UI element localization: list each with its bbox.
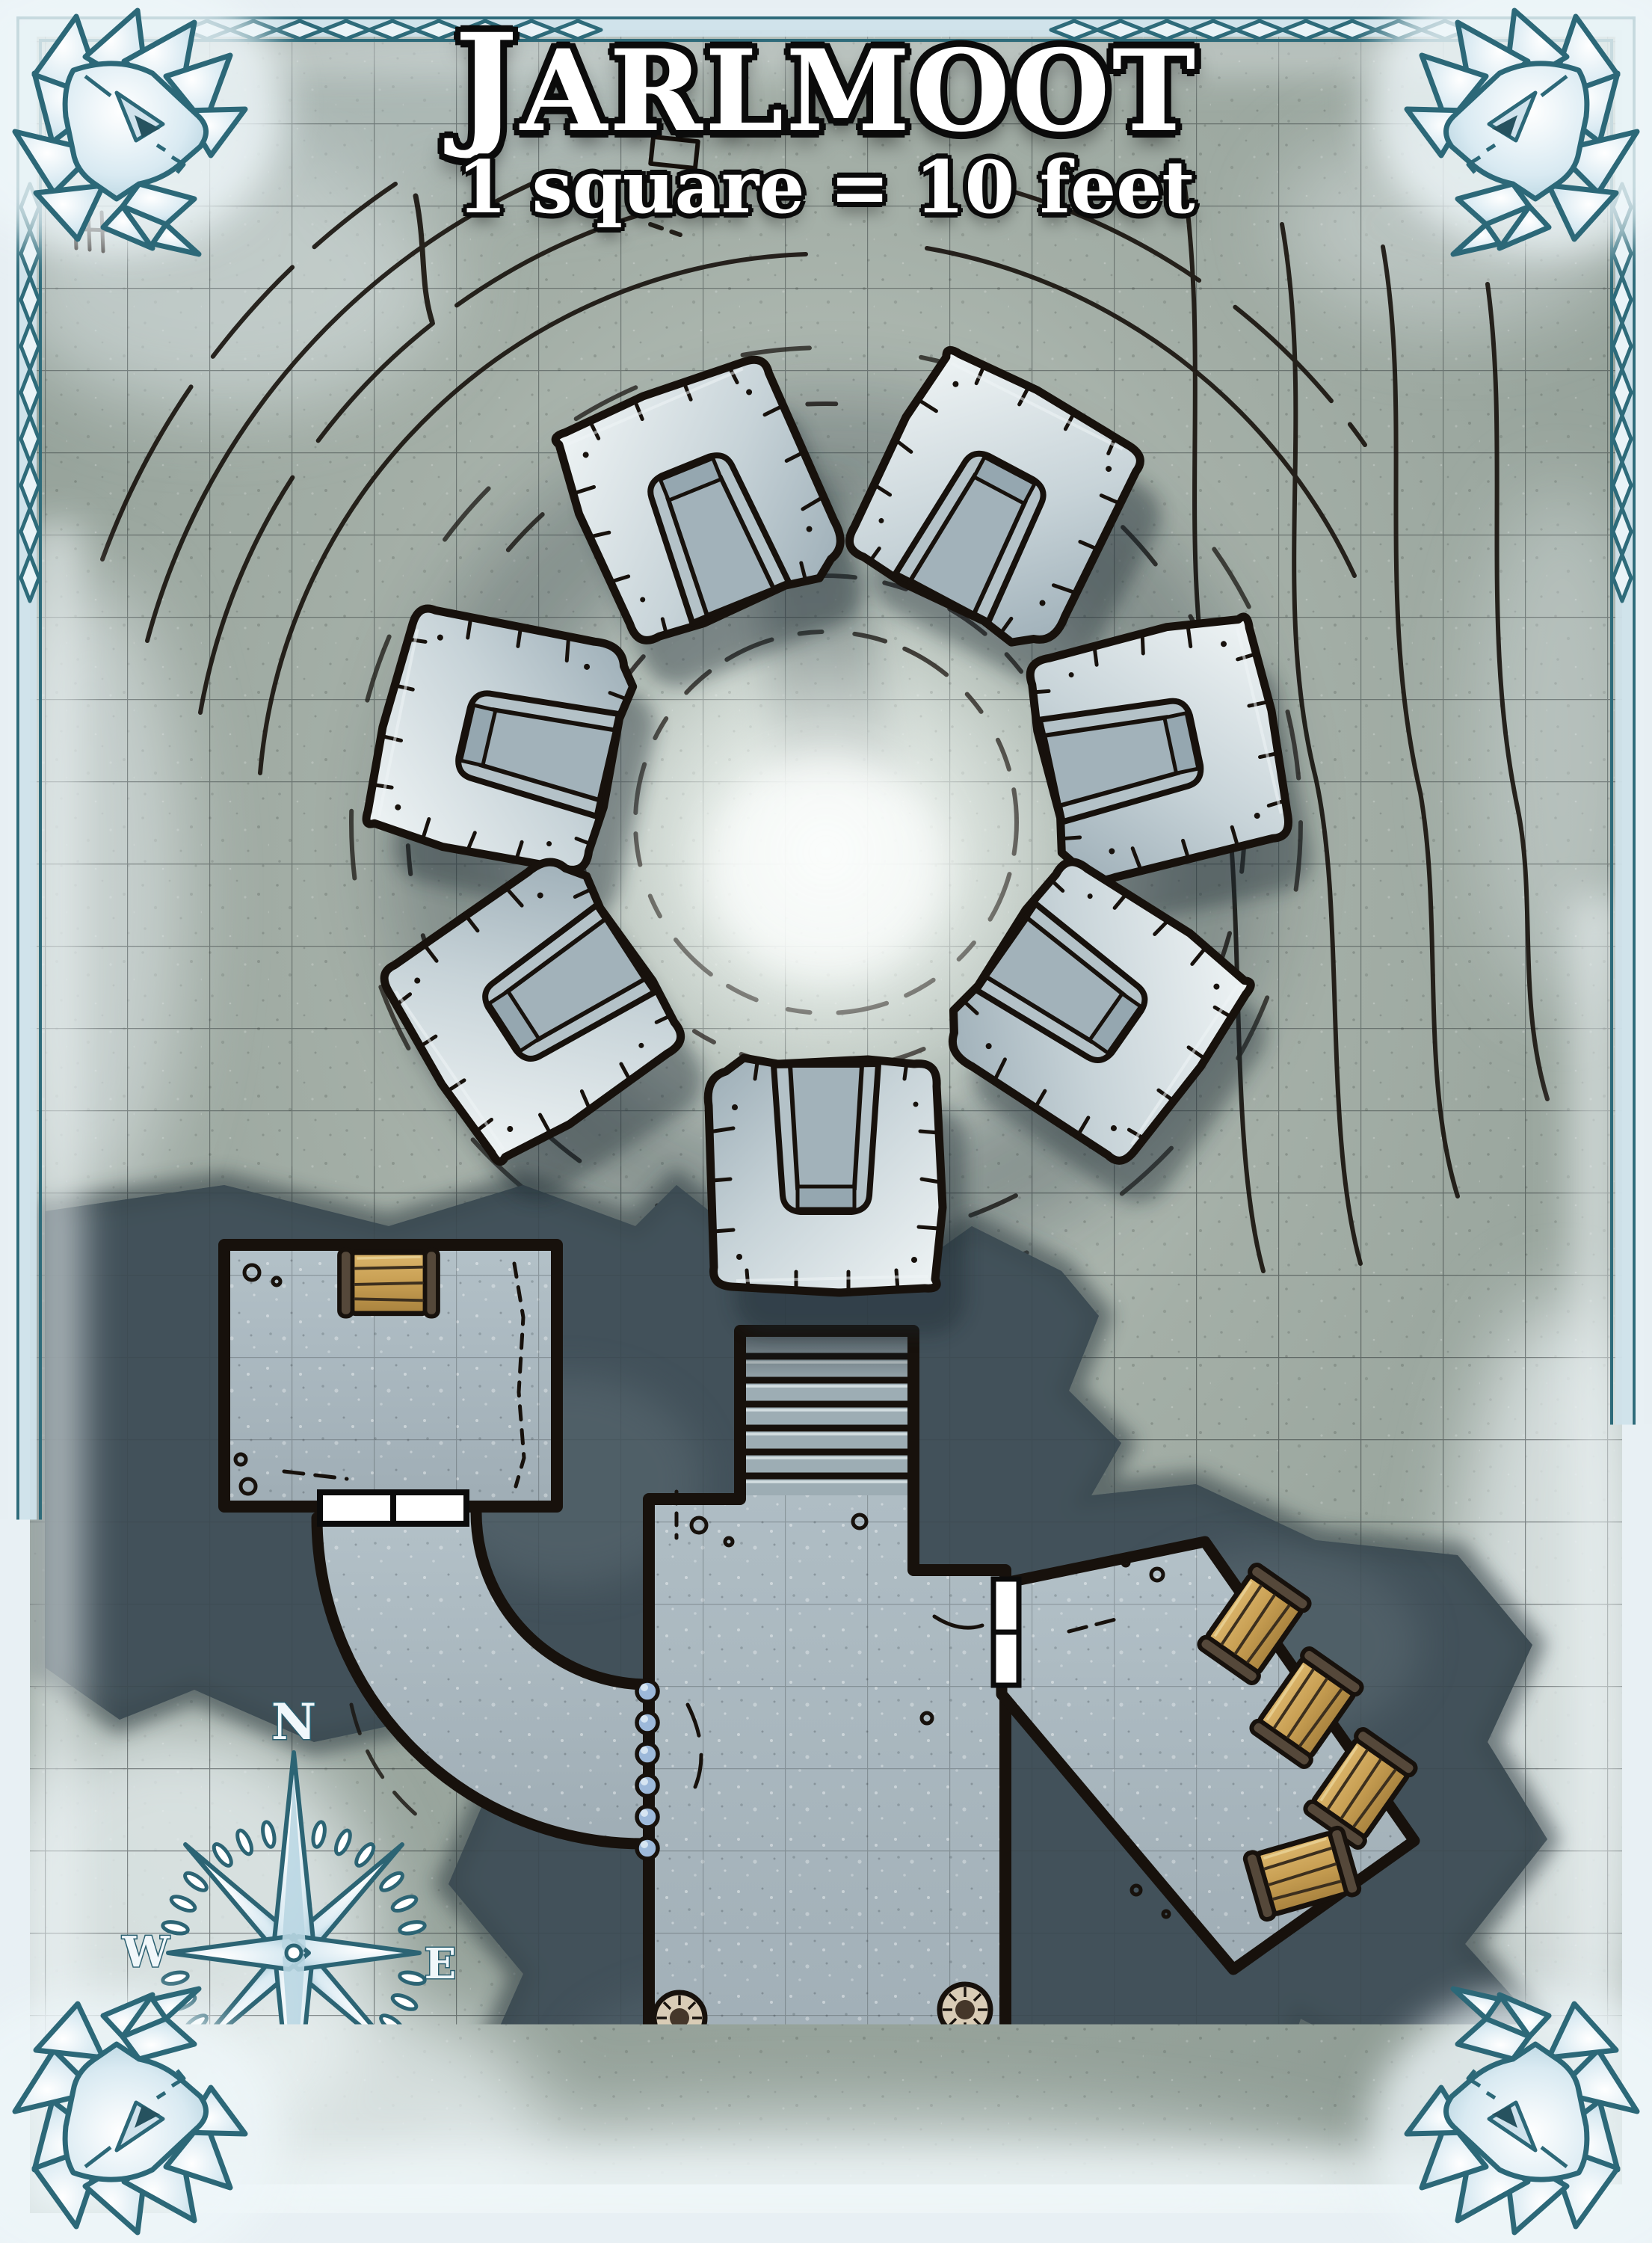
- stairs: [742, 1332, 912, 1495]
- stone-throne: [708, 1058, 943, 1293]
- compass-letter-e: E: [425, 1939, 457, 1989]
- map-scale-note: 1 square = 10 feet: [0, 152, 1652, 224]
- compass-letter-w: W: [122, 1927, 170, 1977]
- storeroom-double-door: [320, 1492, 466, 1524]
- map-content: N E S W: [0, 30, 1652, 2243]
- pillar: [842, 2107, 893, 2158]
- map-header: JARLMOOT 1 square = 10 feet: [0, 19, 1652, 224]
- compass-letter-n: N: [271, 1693, 316, 1751]
- map-title: JARLMOOT: [0, 19, 1652, 147]
- jarlmoot-battle-map: N E S W: [0, 0, 1652, 2243]
- pillar: [940, 1984, 990, 2035]
- pillar: [654, 1993, 705, 2043]
- pillar: [654, 2104, 705, 2155]
- barrel: [339, 1249, 438, 1316]
- storeroom: [224, 1245, 557, 1524]
- map-canvas: N E S W: [0, 0, 1652, 2243]
- pillar: [940, 2104, 990, 2155]
- stone-throne: [1020, 609, 1298, 887]
- hall-east-door: [993, 1579, 1019, 1685]
- pillar: [756, 2107, 807, 2158]
